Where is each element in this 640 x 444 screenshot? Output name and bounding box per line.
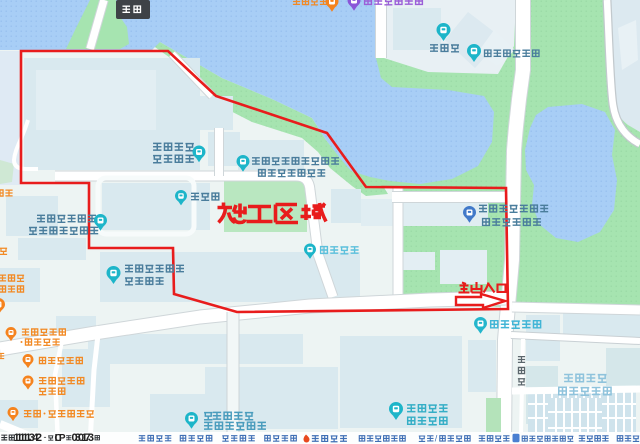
svg-text:ICP: ICP <box>55 433 66 444</box>
svg-text:030173: 030173 <box>72 432 95 444</box>
svg-text:11111342: 11111342 <box>14 432 43 444</box>
svg-text:-: - <box>44 432 47 442</box>
